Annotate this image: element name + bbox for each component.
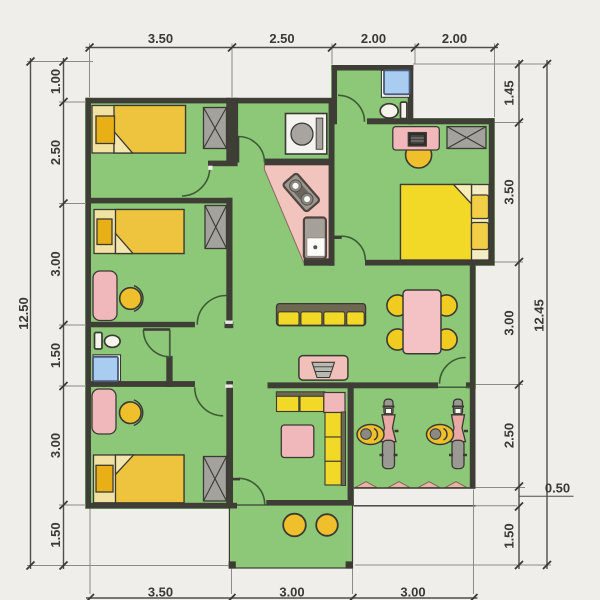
svg-text:0.50: 0.50 bbox=[545, 481, 570, 496]
svg-text:3.00: 3.00 bbox=[48, 433, 63, 458]
svg-text:2.00: 2.00 bbox=[361, 31, 386, 46]
svg-text:1.45: 1.45 bbox=[502, 80, 517, 105]
svg-text:3.50: 3.50 bbox=[502, 179, 517, 204]
svg-text:2.00: 2.00 bbox=[442, 31, 467, 46]
svg-text:1.50: 1.50 bbox=[48, 522, 63, 547]
svg-text:12.50: 12.50 bbox=[16, 297, 31, 330]
svg-text:3.50: 3.50 bbox=[148, 31, 173, 46]
svg-text:12.45: 12.45 bbox=[532, 299, 547, 332]
svg-text:3.00: 3.00 bbox=[400, 585, 425, 600]
svg-text:2.50: 2.50 bbox=[48, 140, 63, 165]
svg-text:3.00: 3.00 bbox=[502, 310, 517, 335]
svg-text:1.50: 1.50 bbox=[48, 343, 63, 368]
svg-text:1.00: 1.00 bbox=[48, 69, 63, 94]
svg-text:3.00: 3.00 bbox=[48, 251, 63, 276]
svg-text:2.50: 2.50 bbox=[269, 31, 294, 46]
svg-text:2.50: 2.50 bbox=[502, 423, 517, 448]
svg-text:3.00: 3.00 bbox=[279, 585, 304, 600]
svg-text:1.50: 1.50 bbox=[502, 523, 517, 548]
svg-text:3.50: 3.50 bbox=[148, 585, 173, 600]
